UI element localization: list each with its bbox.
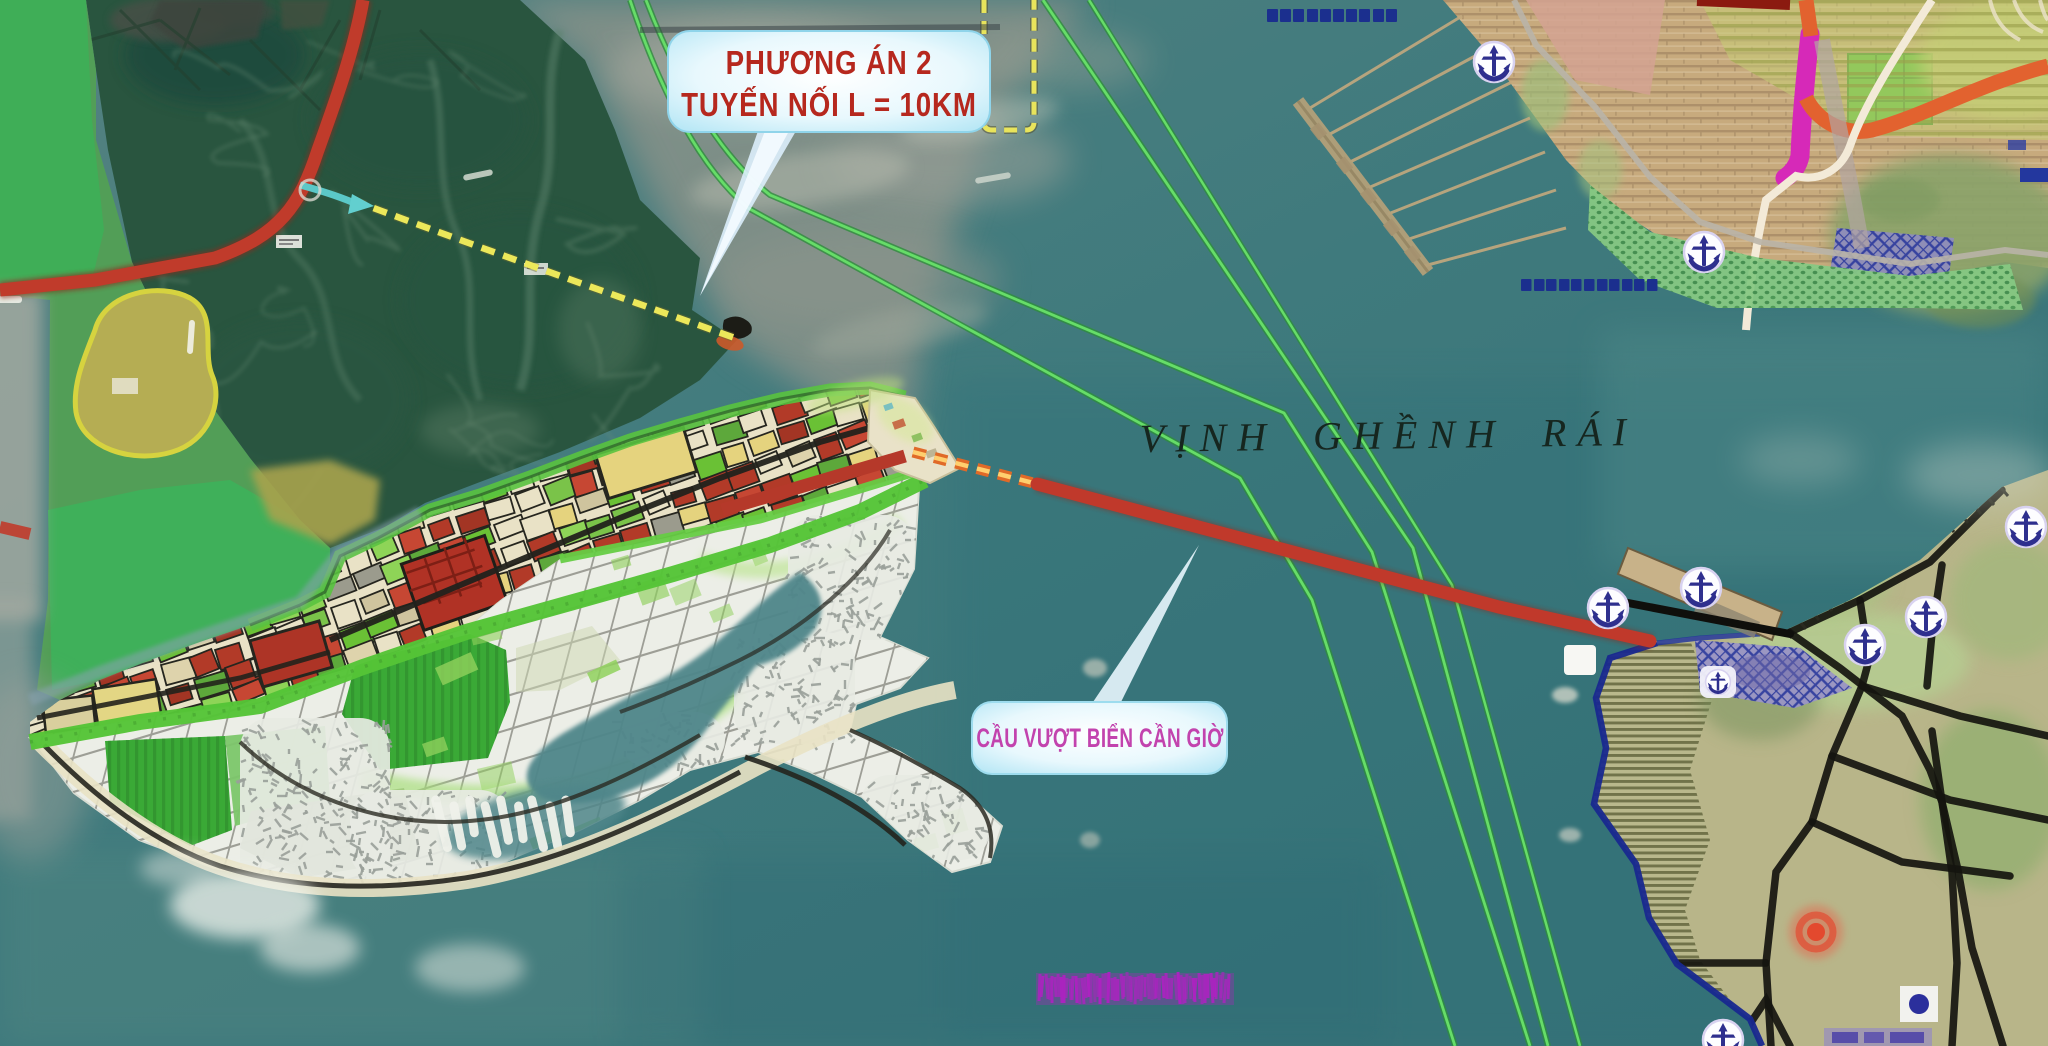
svg-text:VỊNH GHỀNH RÁI: VỊNH GHỀNH RÁI <box>1139 409 1637 461</box>
svg-text:PHƯƠNG ÁN 2: PHƯƠNG ÁN 2 <box>726 44 933 82</box>
svg-text:TUYẾN NỐI L = 10KM: TUYẾN NỐI L = 10KM <box>681 85 977 124</box>
svg-text:CẦU VƯỢT BIỂN CẦN GIỜ: CẦU VƯỢT BIỂN CẦN GIỜ <box>976 722 1223 753</box>
